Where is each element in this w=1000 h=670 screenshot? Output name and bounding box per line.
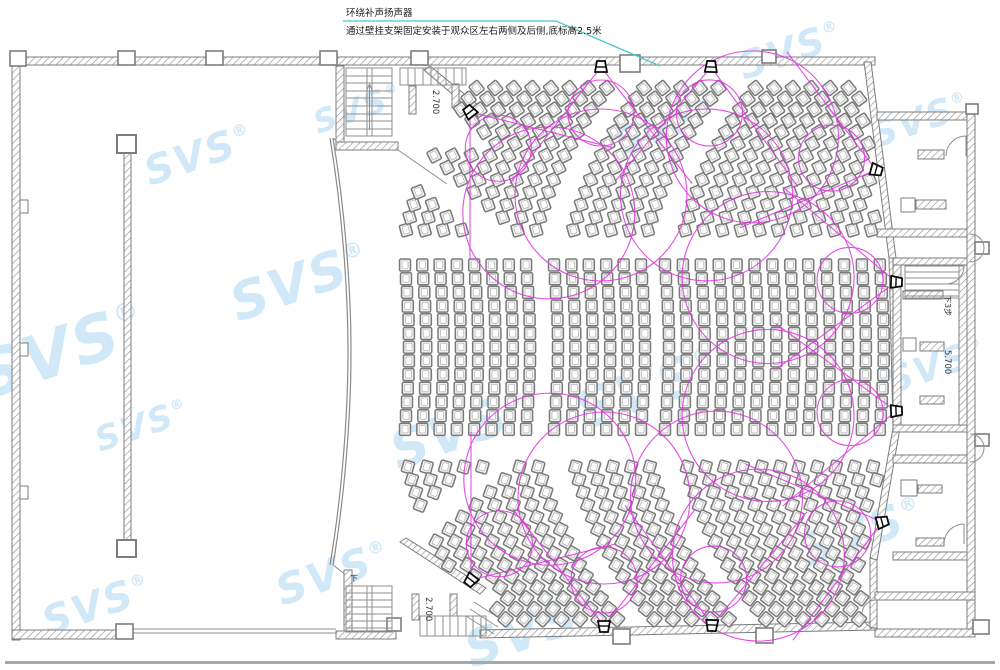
seat (454, 382, 465, 394)
seat-pan (419, 261, 425, 269)
seat (437, 300, 448, 312)
seat-pan (404, 398, 410, 406)
seat (591, 472, 605, 487)
seat (552, 314, 563, 326)
seat (506, 300, 517, 312)
seat-pan (572, 316, 578, 324)
seat (858, 286, 869, 298)
seat (715, 286, 726, 298)
seat-pan (526, 384, 532, 392)
seat (733, 286, 744, 298)
seat-pan (642, 357, 648, 365)
seat (805, 396, 816, 408)
seat (735, 369, 746, 381)
wall-pilaster (20, 486, 28, 499)
seat-pan (859, 261, 865, 269)
seat (401, 273, 412, 285)
seat-pan (806, 412, 812, 420)
seat-pan (607, 330, 613, 338)
seat-pan (806, 275, 812, 283)
seat (717, 369, 728, 381)
column (117, 135, 136, 153)
seat (767, 259, 778, 271)
seat (520, 485, 534, 500)
seat (743, 485, 757, 500)
seat-pan (523, 261, 529, 269)
seat-pan (861, 398, 867, 406)
seat (413, 497, 428, 512)
seat (402, 300, 413, 312)
seat (400, 259, 411, 271)
seat (731, 423, 742, 435)
seat (496, 210, 510, 225)
seat (587, 460, 601, 475)
seat-pan (475, 371, 481, 379)
seat-pan (640, 288, 646, 296)
seat-pan (605, 288, 611, 296)
column (620, 55, 640, 72)
seat-pan (719, 371, 725, 379)
seat (717, 460, 731, 475)
seat-pan (423, 316, 429, 324)
seat-pan (719, 302, 725, 310)
seat-pan (666, 343, 672, 351)
seat (858, 396, 869, 408)
seat (605, 341, 616, 353)
seat-pan (809, 357, 815, 365)
seat (525, 328, 536, 340)
seat-pan (642, 316, 648, 324)
seat (681, 355, 692, 367)
seat (489, 382, 500, 394)
seat (698, 300, 709, 312)
seat (860, 341, 871, 353)
seat-pan (842, 275, 848, 283)
seat-pan (589, 371, 595, 379)
seat (622, 341, 633, 353)
seat (455, 341, 466, 353)
small-box (903, 338, 916, 351)
seat (523, 396, 534, 408)
seat (568, 460, 582, 475)
right-outer-wall (967, 112, 975, 637)
seat-pan (773, 371, 779, 379)
seat (566, 259, 577, 271)
seat (735, 314, 746, 326)
seat-pan (808, 302, 814, 310)
seat-pan (586, 261, 592, 269)
seat (663, 328, 674, 340)
seat-pan (471, 425, 477, 433)
seat-pan (718, 288, 724, 296)
seat (805, 286, 816, 298)
seat-pan (554, 384, 560, 392)
seat (717, 314, 728, 326)
seat (646, 472, 660, 487)
seat (648, 197, 662, 212)
seat-pan (700, 288, 706, 296)
seat-pan (475, 357, 481, 365)
seat (663, 369, 674, 381)
seat (816, 197, 830, 212)
seat (661, 273, 672, 285)
seat (808, 223, 822, 238)
seat-pan (843, 398, 849, 406)
auditorium-floor-plan: SVS®SVS®SVS®SVS®SVS®SVS®SVS®SVS®SVS®SVS®… (0, 0, 1000, 670)
hatched-bar (918, 485, 942, 493)
seat (771, 355, 782, 367)
seat-pan (754, 384, 760, 392)
seat (539, 485, 553, 500)
seat (423, 472, 437, 487)
seat (473, 328, 484, 340)
seat (587, 328, 598, 340)
seat-pan (701, 371, 707, 379)
seat-pan (666, 316, 672, 324)
seat-pan (571, 384, 577, 392)
seat-pan (441, 357, 447, 365)
seat-pan (623, 384, 629, 392)
seat-pan (639, 412, 645, 420)
seat (470, 273, 481, 285)
seat (787, 286, 798, 298)
seat-pan (570, 398, 576, 406)
seat-pan (700, 398, 706, 406)
seat (427, 148, 442, 164)
seat-pan (807, 398, 813, 406)
seat (787, 396, 798, 408)
seat (438, 328, 449, 340)
seat-pan (642, 330, 648, 338)
seat-pan (527, 330, 533, 338)
seat-pan (606, 384, 612, 392)
seat (455, 314, 466, 326)
seat (713, 423, 724, 435)
seat-pan (441, 330, 447, 338)
seat-pan (755, 316, 761, 324)
seat (438, 355, 449, 367)
seat-pan (638, 425, 644, 433)
seat-pan (607, 343, 613, 351)
seat (857, 410, 868, 422)
stage-edge-curve (330, 138, 348, 565)
seat (569, 300, 580, 312)
seat (630, 197, 644, 212)
seat-pan (524, 275, 530, 283)
seat-pan (823, 261, 829, 269)
seat-pan (455, 412, 461, 420)
seat (403, 369, 414, 381)
seat (585, 223, 599, 238)
seat (622, 328, 633, 340)
seat (472, 300, 483, 312)
seat (750, 273, 761, 285)
seat-pan (406, 330, 412, 338)
seat (533, 210, 547, 225)
seat-pan (423, 371, 429, 379)
seat-pan (737, 316, 743, 324)
seat (681, 341, 692, 353)
seat (877, 300, 888, 312)
seat (769, 286, 780, 298)
seat (436, 396, 447, 408)
seat-pan (717, 275, 723, 283)
seat (440, 210, 454, 225)
seat (583, 259, 594, 271)
seat-pan (788, 275, 794, 283)
seat (641, 223, 655, 238)
watermark-text: SVS® (223, 231, 379, 335)
seat-pan (701, 302, 707, 310)
seat-pan (441, 343, 447, 351)
seat (605, 328, 616, 340)
seat (878, 369, 889, 381)
seat (490, 355, 501, 367)
annotation-line1: 环绕补声扬声器 (346, 7, 413, 19)
seat (706, 485, 720, 500)
left-wall (12, 57, 20, 640)
elevation-corridor: 5.700 (942, 350, 952, 374)
seat (470, 410, 481, 422)
seat-pan (527, 343, 533, 351)
seat-pan (880, 316, 886, 324)
seat-pan (606, 302, 612, 310)
seat (752, 300, 763, 312)
seat-pan (457, 302, 463, 310)
seat-pan (456, 288, 462, 296)
seat-pan (663, 275, 669, 283)
seat (749, 423, 760, 435)
seat (803, 423, 814, 435)
seat-pan (625, 343, 631, 351)
seat-pan (881, 330, 887, 338)
seat-pan (639, 275, 645, 283)
seat (856, 423, 867, 435)
seat-pan (489, 425, 495, 433)
seat-pan (493, 343, 499, 351)
seat (836, 485, 850, 500)
surround-speaker-icon (598, 621, 610, 632)
seat (473, 341, 484, 353)
seat (860, 328, 871, 340)
seat-pan (439, 302, 445, 310)
seat (628, 472, 642, 487)
surround-speaker-icon (595, 61, 607, 72)
seat-pan (554, 302, 560, 310)
seat (601, 259, 612, 271)
seat-pan (492, 330, 498, 338)
seat-pan (568, 261, 574, 269)
stair-wall (336, 66, 344, 150)
seat (768, 273, 779, 285)
seat-pan (454, 425, 460, 433)
seat (551, 286, 562, 298)
seat-pan (590, 330, 596, 338)
seat (640, 341, 651, 353)
seat (681, 328, 692, 340)
surround-speaker-icon (891, 276, 902, 288)
seat (455, 369, 466, 381)
seat (823, 286, 834, 298)
seat (788, 369, 799, 381)
seat-pan (525, 288, 531, 296)
seat (471, 396, 482, 408)
seat-pan (590, 343, 596, 351)
seat (513, 460, 527, 475)
seat (853, 197, 867, 212)
seat (663, 355, 674, 367)
seat (586, 382, 597, 394)
seat (420, 314, 431, 326)
seat-pan (572, 330, 578, 338)
seat-pan (756, 343, 762, 351)
seat (522, 410, 533, 422)
seat (402, 396, 413, 408)
seat-pan (491, 302, 497, 310)
seat-pan (720, 357, 726, 365)
surround-speaker-icon (706, 620, 718, 631)
seat (806, 369, 817, 381)
seat-pan (683, 371, 689, 379)
seat (793, 210, 807, 225)
seat (403, 210, 417, 225)
seat (551, 382, 562, 394)
seat-pan (773, 343, 779, 351)
seat (823, 396, 834, 408)
seat (621, 382, 632, 394)
seat (877, 382, 888, 394)
seat (664, 341, 675, 353)
hatched-bar (412, 594, 419, 620)
seat (786, 410, 797, 422)
seat-pan (663, 412, 669, 420)
seat-pan (625, 357, 631, 365)
seat-pan (787, 425, 793, 433)
seat-pan (419, 425, 425, 433)
seat (866, 460, 880, 475)
seat-pan (420, 412, 426, 420)
seat-pan (623, 302, 629, 310)
seat-pan (881, 357, 887, 365)
seat (507, 369, 518, 381)
seat (767, 423, 778, 435)
room-wall (893, 552, 975, 560)
seat-pan (440, 371, 446, 379)
seat (622, 355, 633, 367)
seat-pan (880, 384, 886, 392)
seat-pan (586, 425, 592, 433)
wall-pilaster (20, 200, 28, 213)
seat (566, 223, 580, 238)
room-wall (875, 592, 975, 600)
seat-pan (405, 384, 411, 392)
seat-pan (589, 316, 595, 324)
seat (420, 369, 431, 381)
seat (660, 259, 671, 271)
seat (529, 223, 543, 238)
seat (790, 223, 804, 238)
seat-pan (491, 398, 497, 406)
seat (604, 223, 618, 238)
seat (490, 314, 501, 326)
seat (535, 472, 549, 487)
surround-speaker-icon (705, 61, 717, 72)
seat (417, 423, 428, 435)
seat (753, 314, 764, 326)
seat-pan (684, 330, 690, 338)
seat (574, 197, 588, 212)
seat-pan (474, 302, 480, 310)
seat (537, 197, 551, 212)
seat (697, 286, 708, 298)
seat-pan (555, 330, 561, 338)
seat-pan (754, 302, 760, 310)
seat-pan (641, 384, 647, 392)
seat-pan (791, 343, 797, 351)
seat-pan (863, 330, 869, 338)
seat-pan (568, 425, 574, 433)
seat-pan (553, 398, 559, 406)
seat-pan (862, 316, 868, 324)
seat-pan (421, 398, 427, 406)
seat (403, 355, 414, 367)
seat-pan (684, 357, 690, 365)
seat-pan (791, 371, 797, 379)
seat-pan (664, 398, 670, 406)
seat-pan (438, 412, 444, 420)
seat-pan (552, 275, 558, 283)
seat-pan (863, 343, 869, 351)
seat (455, 328, 466, 340)
seat-pan (734, 425, 740, 433)
seat-pan (684, 343, 690, 351)
seat (402, 286, 413, 298)
seat-pan (841, 261, 847, 269)
seat-pan (823, 425, 829, 433)
seat (421, 210, 435, 225)
seat-pan (769, 261, 775, 269)
seat-pan (860, 412, 866, 420)
seat-pan (736, 288, 742, 296)
seat (770, 314, 781, 326)
seat-pan (439, 288, 445, 296)
seat-pan (790, 384, 796, 392)
seat (409, 485, 423, 500)
seat-pan (406, 316, 412, 324)
seat (650, 485, 664, 500)
seat (454, 300, 465, 312)
seat (662, 396, 673, 408)
seat-pan (698, 261, 704, 269)
surround-speaker-icon (891, 405, 902, 417)
column (116, 624, 133, 639)
seat-pan (405, 302, 411, 310)
hatched-bar (918, 150, 944, 159)
seat (679, 286, 690, 298)
seat (438, 341, 449, 353)
column (118, 51, 135, 65)
seat-pan (702, 343, 708, 351)
seat (425, 197, 439, 212)
seat (662, 300, 673, 312)
seat-pan (638, 261, 644, 269)
seat (684, 472, 698, 487)
seat-pan (589, 384, 595, 392)
seat (607, 210, 621, 225)
seat (751, 286, 762, 298)
seat (810, 460, 824, 475)
seat-pan (475, 343, 481, 351)
